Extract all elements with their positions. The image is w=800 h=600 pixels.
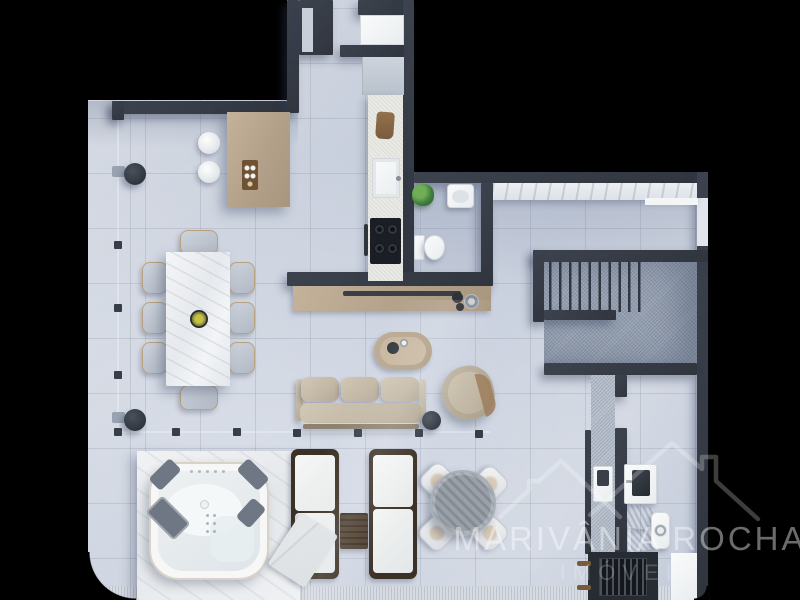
glass-rail-post	[114, 241, 122, 249]
bar-table	[227, 112, 290, 207]
lounger-cushion	[373, 455, 413, 507]
decor-vase	[456, 303, 464, 311]
dining-chair	[142, 302, 168, 334]
watermark-brand: MARIVÂNIA ROCHA	[452, 520, 800, 558]
glass-rail-post	[114, 304, 122, 312]
dining-chair	[229, 262, 255, 294]
wall-stairwell-left	[533, 250, 544, 322]
glass-wall-line-vertical	[117, 100, 119, 433]
wall-stairwell-top	[533, 250, 708, 262]
serving-tray	[242, 160, 258, 190]
floor-plan-canvas: MARIVÂNIA ROCHA IMÓVEIS	[0, 0, 800, 600]
glass-rail-post	[114, 428, 122, 436]
decor-vase	[452, 292, 463, 303]
glass-rail-post	[172, 428, 180, 436]
glass-rail-post	[354, 429, 362, 437]
plant	[412, 184, 434, 206]
corner-mask-bottom-right	[694, 586, 708, 600]
washbasin-bowl	[452, 190, 469, 203]
tall-cabinet	[302, 8, 313, 52]
dining-chair	[180, 385, 218, 410]
glass-rail-post	[233, 428, 241, 436]
dining-chair	[142, 342, 168, 374]
wall-stair-bottom-partial	[544, 310, 616, 320]
centerpiece-bowl	[190, 310, 208, 328]
planter	[124, 163, 146, 185]
sofa-seat	[300, 403, 422, 423]
bar-stool	[198, 161, 220, 183]
wall-landing-bottom	[544, 363, 697, 375]
decor-kettle	[400, 339, 408, 347]
cooktop-burner	[387, 243, 398, 254]
wall-top-left-cap	[112, 101, 124, 120]
glass-rail-post	[114, 371, 122, 379]
refrigerator	[362, 57, 404, 95]
lounger-side-table	[340, 513, 368, 549]
stair-treads	[549, 262, 648, 312]
wall-under-cabinet	[340, 45, 404, 57]
jacuzzi-jets	[190, 470, 193, 473]
utensil-rail	[364, 224, 368, 256]
cooktop-burner	[374, 224, 385, 235]
right-wall-door-opening	[697, 198, 708, 246]
watermark-tagline: IMÓVEIS	[452, 560, 800, 586]
glass-rail-post	[415, 429, 423, 437]
kitchen-faucet	[396, 176, 401, 181]
jacuzzi-drain	[200, 500, 209, 509]
wall-door-stub	[615, 375, 627, 397]
sofa-base	[303, 424, 419, 429]
planter	[124, 409, 146, 431]
planter-base	[112, 166, 125, 177]
cutting-board	[375, 111, 395, 139]
lounger-cushion	[373, 509, 413, 573]
planter-base	[112, 412, 125, 423]
decor-bowl	[387, 342, 399, 354]
cooktop-burner	[387, 224, 398, 235]
bar-stool	[198, 132, 220, 154]
decor-vase	[464, 294, 479, 309]
jacuzzi-jets	[206, 514, 209, 517]
sideboard-tray	[343, 291, 461, 296]
kitchen-cabinet	[360, 15, 404, 45]
wall-powder-room-right	[481, 183, 493, 283]
sofa-back-cushion	[341, 377, 379, 402]
wall-kitchen-nook-left	[287, 0, 299, 113]
corner-mask-bottom-left	[88, 552, 136, 600]
dining-chair	[229, 302, 255, 334]
glass-rail-post	[293, 429, 301, 437]
dining-chair	[229, 342, 255, 374]
sofa-back-cushion	[381, 377, 419, 402]
lounger-cushion	[295, 455, 335, 511]
wall-top-right	[414, 172, 708, 183]
side-table	[422, 411, 441, 430]
sofa-back-cushion	[301, 377, 339, 402]
cooktop-burner	[374, 243, 385, 254]
wall-kitchen-vertical	[403, 0, 414, 285]
wall-shelf	[645, 198, 698, 205]
dining-chair	[142, 262, 168, 294]
